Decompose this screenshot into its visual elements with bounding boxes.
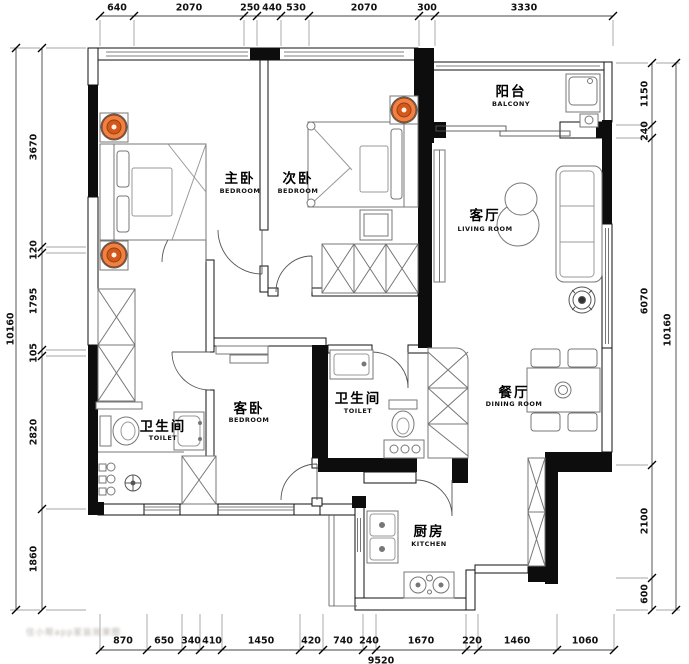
dim-right-1: 240 <box>640 121 651 141</box>
room-label-master-en: BEDROOM <box>220 187 261 195</box>
guest-wardrobe <box>182 456 216 504</box>
dim-bottom-8: 1670 <box>408 636 434 647</box>
room-label-toilet1-zh: 卫生间 <box>140 415 187 435</box>
wall-left-mid <box>88 197 98 345</box>
master-bed <box>100 144 206 240</box>
dim-right-2: 6070 <box>640 288 651 314</box>
room-label-bedroom2-en: BEDROOM <box>278 187 319 195</box>
guest-desk <box>216 346 268 363</box>
dim-left-1: 120 <box>29 240 40 260</box>
room-label-living-en: LIVING ROOM <box>457 225 512 233</box>
wall-mid-vert-a <box>206 260 214 352</box>
bedroom2-desk <box>360 210 392 240</box>
room-label-balcony-zh: 阳台 <box>496 80 527 100</box>
watermark: 住小帮app家装效果图 <box>26 626 121 638</box>
dim-right-4: 600 <box>640 584 651 604</box>
fridge-cabinet <box>528 458 545 566</box>
room-label-bedroom2-zh: 次卧 <box>283 167 314 187</box>
kitchen-sink <box>367 511 398 563</box>
wall-left-top <box>88 48 98 85</box>
dim-bottom-11: 1060 <box>572 636 598 647</box>
wall-passage <box>475 565 528 573</box>
room-label-kitchen-zh: 厨房 <box>414 520 445 540</box>
room-label-toilet2-zh: 卫生间 <box>335 387 382 407</box>
coffee-tables <box>497 183 539 246</box>
dim-left-3: 105 <box>29 343 40 363</box>
downlight-icon <box>391 97 417 123</box>
dim-top-4: 530 <box>286 3 306 14</box>
room-label-toilet2-en: TOILET <box>344 407 372 415</box>
room-label-guest-zh: 客卧 <box>234 397 265 417</box>
dim-bottom-5: 420 <box>301 636 321 647</box>
dim-top-1: 2070 <box>176 3 202 14</box>
dim-bottom-9: 220 <box>462 636 482 647</box>
hall-storage-cabinet <box>428 348 468 458</box>
bedroom2-bed <box>307 122 418 207</box>
floor-lamp-icon <box>569 287 595 313</box>
dim-bottom-1: 650 <box>154 636 174 647</box>
dim-top-2: 250 <box>240 3 260 14</box>
dim-right-3: 2100 <box>640 508 651 534</box>
room-label-kitchen-en: KITCHEN <box>411 540 446 548</box>
dim-right-total: 10160 <box>663 313 674 346</box>
room-label-balcony-en: BALCONY <box>492 100 530 108</box>
dim-bottom-7: 240 <box>359 636 379 647</box>
bedroom2-closet <box>322 244 418 293</box>
room-label-master-zh: 主卧 <box>225 167 256 187</box>
shower-head-icon <box>125 475 141 491</box>
wall-kitchen-right <box>466 570 475 610</box>
dim-top-7: 3330 <box>511 3 537 14</box>
balcony-slider-panel-1 <box>436 126 506 131</box>
dim-bottom-4: 1450 <box>248 636 274 647</box>
dim-right-0: 1150 <box>640 81 651 107</box>
wall-right-window-section <box>602 224 612 348</box>
kitchen-stove <box>404 572 454 598</box>
dim-top-0: 640 <box>107 3 127 14</box>
dining-set <box>527 349 600 431</box>
dim-bottom-3: 410 <box>202 636 222 647</box>
dimline-left <box>16 48 42 610</box>
door-kitchen <box>416 480 452 516</box>
dim-bottom-total: 9520 <box>368 656 394 664</box>
master-wardrobe <box>98 289 135 401</box>
wall-balcony-right <box>604 62 612 122</box>
wall-kitchen-top <box>364 472 416 483</box>
wall-right-lower <box>602 348 612 452</box>
furniture <box>96 74 602 598</box>
door-toilet2 <box>372 352 408 388</box>
dim-top-6: 300 <box>417 3 437 14</box>
wall-kitchen-bottom <box>355 598 475 610</box>
dim-left-0: 3670 <box>29 134 40 160</box>
wall-shaft <box>329 515 357 606</box>
room-label-dining-zh: 餐厅 <box>499 381 530 401</box>
wall-guest-top <box>214 338 326 346</box>
tv-console <box>434 150 445 282</box>
floor-plan-drawing <box>0 0 689 664</box>
dim-bottom-6: 740 <box>333 636 353 647</box>
door-toilet1 <box>172 352 210 390</box>
dim-top-3: 440 <box>262 3 282 14</box>
door-master <box>218 230 262 274</box>
dim-left-total: 10160 <box>6 312 17 345</box>
room-label-guest-en: BEDROOM <box>229 416 270 424</box>
room-label-toilet1-en: TOILET <box>149 434 177 442</box>
room-label-dining-en: DINING ROOM <box>486 400 543 408</box>
wall-bedroom-divider-lower <box>260 266 268 292</box>
dim-bottom-2: 340 <box>181 636 201 647</box>
dim-bottom-10: 1460 <box>504 636 530 647</box>
downlight-icon <box>101 242 127 268</box>
dim-left-5: 1860 <box>29 546 40 572</box>
door-guest <box>281 464 317 500</box>
dim-left-4: 2820 <box>29 419 40 445</box>
wall-bedroom-divider-upper <box>260 60 268 230</box>
floorplan-page: 主卧 BEDROOM 次卧 BEDROOM 阳台 BALCONY 客厅 LIVI… <box>0 0 689 664</box>
sofa <box>556 166 602 282</box>
downlight-icon <box>101 114 127 140</box>
dim-left-2: 1795 <box>29 288 40 314</box>
room-label-living-zh: 客厅 <box>470 204 501 224</box>
wall-mid-vert-b <box>206 390 214 458</box>
shower-area <box>98 452 184 495</box>
washing-machine <box>566 74 600 127</box>
door-bedroom2 <box>276 256 312 292</box>
dim-top-5: 2070 <box>351 3 377 14</box>
wall-kitchen-left <box>355 505 364 605</box>
